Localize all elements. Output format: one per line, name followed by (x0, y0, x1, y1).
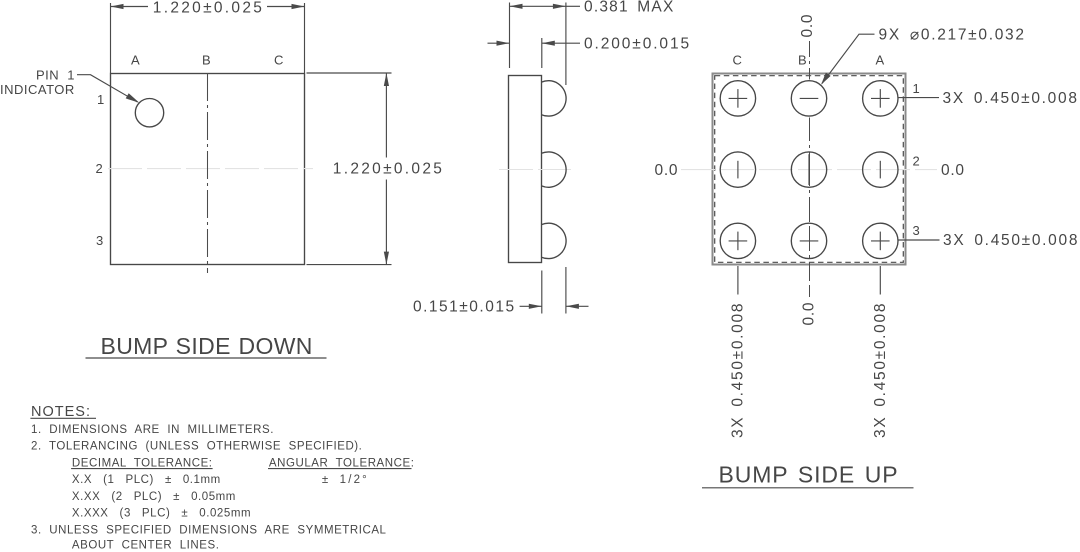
svg-text:C: C (274, 53, 284, 68)
svg-text:C: C (733, 53, 743, 68)
svg-text:0.0: 0.0 (801, 302, 818, 326)
svg-text:3. UNLESS SPECIFIED DIMENSIONS: 3. UNLESS SPECIFIED DIMENSIONS ARE SYMME… (31, 524, 387, 536)
svg-text:2: 2 (913, 154, 921, 169)
svg-text:1: 1 (97, 92, 105, 107)
svg-text:BUMP SIDE UP: BUMP SIDE UP (719, 462, 899, 488)
svg-text:3X 0.450±0.008: 3X 0.450±0.008 (729, 302, 746, 438)
svg-text:3X 0.450±0.008: 3X 0.450±0.008 (943, 232, 1079, 249)
svg-text:B: B (202, 53, 211, 68)
svg-text:INDICATOR: INDICATOR (0, 82, 75, 97)
svg-text:3X 0.450±0.008: 3X 0.450±0.008 (872, 302, 889, 438)
svg-text:3: 3 (96, 233, 104, 248)
svg-text:B: B (798, 53, 807, 68)
svg-text:3: 3 (913, 223, 921, 238)
svg-text:0.0: 0.0 (799, 14, 816, 38)
svg-text:3X 0.450±0.008: 3X 0.450±0.008 (943, 90, 1079, 107)
svg-text:2. TOLERANCING (UNLESS OTHERWI: 2. TOLERANCING (UNLESS OTHERWISE SPECIFI… (31, 441, 362, 453)
svg-text:0.200±0.015: 0.200±0.015 (584, 36, 691, 53)
svg-text:BUMP SIDE DOWN: BUMP SIDE DOWN (101, 333, 313, 359)
svg-text:1. DIMENSIONS ARE IN MILLIMETE: 1. DIMENSIONS ARE IN MILLIMETERS. (31, 424, 274, 436)
svg-text:DECIMAL TOLERANCE:: DECIMAL TOLERANCE: (72, 457, 213, 469)
svg-text:1: 1 (913, 81, 921, 96)
svg-text:PIN 1: PIN 1 (36, 68, 75, 83)
svg-text:ANGULAR TOLERANCE:: ANGULAR TOLERANCE: (269, 457, 415, 469)
svg-text:NOTES:: NOTES: (31, 404, 91, 420)
svg-text:0.151±0.015: 0.151±0.015 (413, 299, 516, 316)
svg-text:A: A (876, 53, 885, 68)
svg-text:1.220±0.025: 1.220±0.025 (153, 0, 264, 17)
svg-text:A: A (131, 53, 140, 68)
svg-text:0.381 MAX: 0.381 MAX (584, 0, 674, 16)
svg-text:0.0: 0.0 (941, 162, 965, 179)
svg-text:1.220±0.025: 1.220±0.025 (333, 161, 444, 178)
svg-text:0.0: 0.0 (655, 162, 679, 179)
svg-text:X.XX (2 PLC) ± 0.05mm: X.XX (2 PLC) ± 0.05mm (72, 491, 236, 503)
svg-text:ABOUT CENTER LINES.: ABOUT CENTER LINES. (72, 540, 220, 552)
svg-text:9X ⌀0.217±0.032: 9X ⌀0.217±0.032 (879, 27, 1026, 44)
svg-text:2: 2 (96, 161, 104, 176)
svg-text:± 1/2°: ± 1/2° (322, 474, 369, 486)
svg-text:X.X (1 PLC) ± 0.1mm: X.X (1 PLC) ± 0.1mm (72, 474, 221, 486)
svg-text:X.XXX (3 PLC) ± 0.025mm: X.XXX (3 PLC) ± 0.025mm (72, 508, 251, 520)
